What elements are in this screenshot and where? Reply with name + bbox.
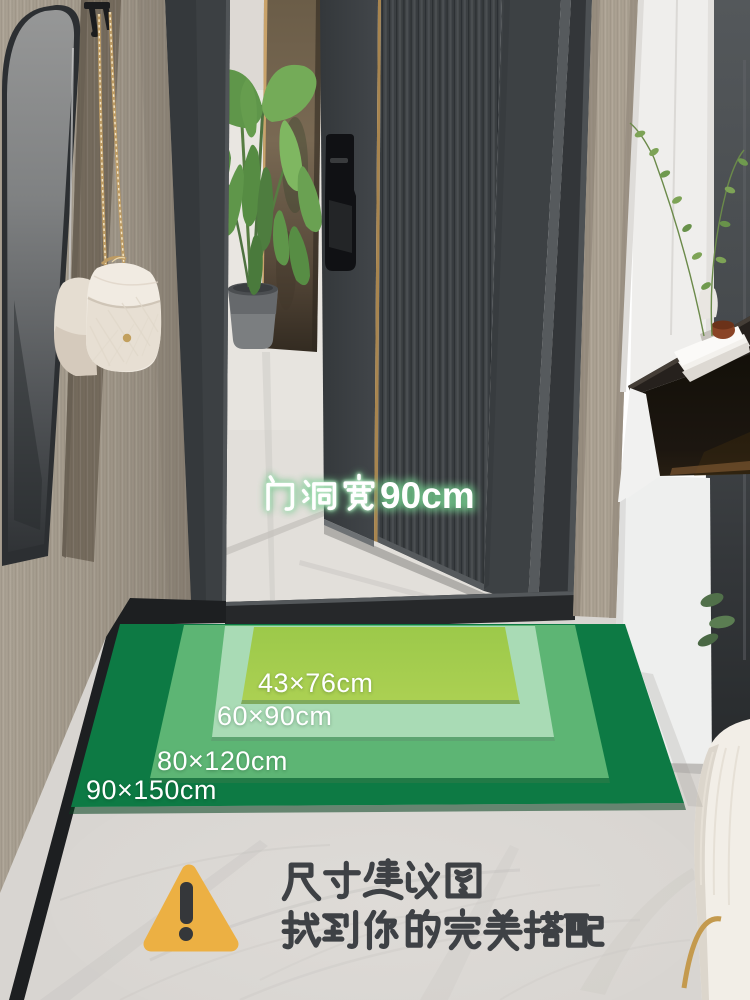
svg-text:90cm: 90cm xyxy=(380,475,475,516)
